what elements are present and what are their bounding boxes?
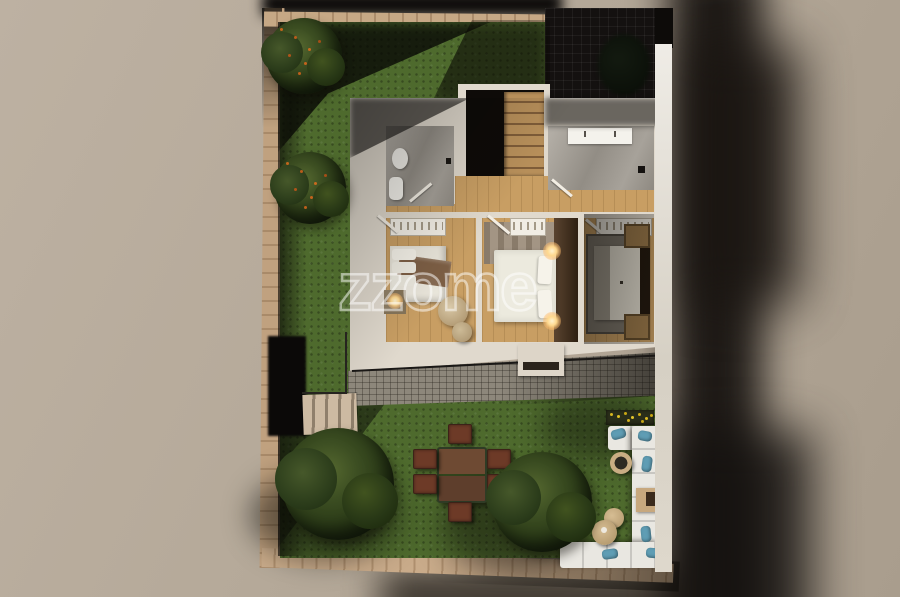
vanity-faucet-2 (614, 131, 616, 137)
nightstand-right-top (624, 224, 650, 248)
table-cup (601, 527, 607, 533)
tree-fruits (280, 28, 283, 31)
flower-planter (606, 410, 654, 425)
bathroom-left-accessory (446, 158, 451, 164)
stair-void-left (268, 336, 306, 436)
terrace-corner-dark (655, 8, 673, 48)
garden-tree-right (492, 452, 592, 552)
garden-tree-left (282, 428, 394, 540)
nightstand-right-bottom (624, 314, 650, 340)
watermark: zzome (338, 252, 568, 322)
sofa-pillow-4 (640, 526, 652, 543)
bed-right-foot-blanket (594, 246, 610, 320)
bed-right-headboard (640, 244, 650, 322)
dining-table (437, 447, 487, 503)
floorplan-render-scene: zzome (0, 0, 900, 597)
cast-shadow-right-bulge (690, 45, 800, 305)
bathroom-right-accessory (638, 166, 645, 173)
dining-chair-left-2 (413, 474, 437, 494)
tree-fruits (286, 162, 289, 165)
round-table-top (610, 452, 632, 474)
pouf-left-bedroom (452, 322, 472, 342)
bed-right-button (620, 281, 623, 284)
boundary-wall-right (655, 44, 672, 572)
orange-tree-top-1 (266, 18, 342, 94)
dining-chair-left-1 (413, 449, 437, 469)
planter-flowers (610, 413, 613, 416)
closet-middle (510, 218, 546, 236)
toilet (392, 148, 408, 169)
closet-left (390, 218, 446, 236)
double-vanity (568, 128, 632, 144)
vanity-faucet-1 (584, 131, 586, 137)
handrail-horizontal (302, 392, 347, 394)
handrail-vertical (345, 332, 347, 394)
stairs (504, 92, 544, 176)
landing-bump-out (518, 344, 564, 376)
cast-shadow-bottom-right (672, 430, 812, 597)
dining-chair-bottom (448, 502, 472, 522)
cast-shadow-right (668, 0, 763, 597)
orange-tree-top-2 (274, 152, 346, 224)
terrace-dark-object (598, 34, 650, 96)
bathroom-left-sink (389, 177, 403, 200)
dining-chair-top (448, 424, 472, 444)
landing-slot (523, 362, 559, 370)
